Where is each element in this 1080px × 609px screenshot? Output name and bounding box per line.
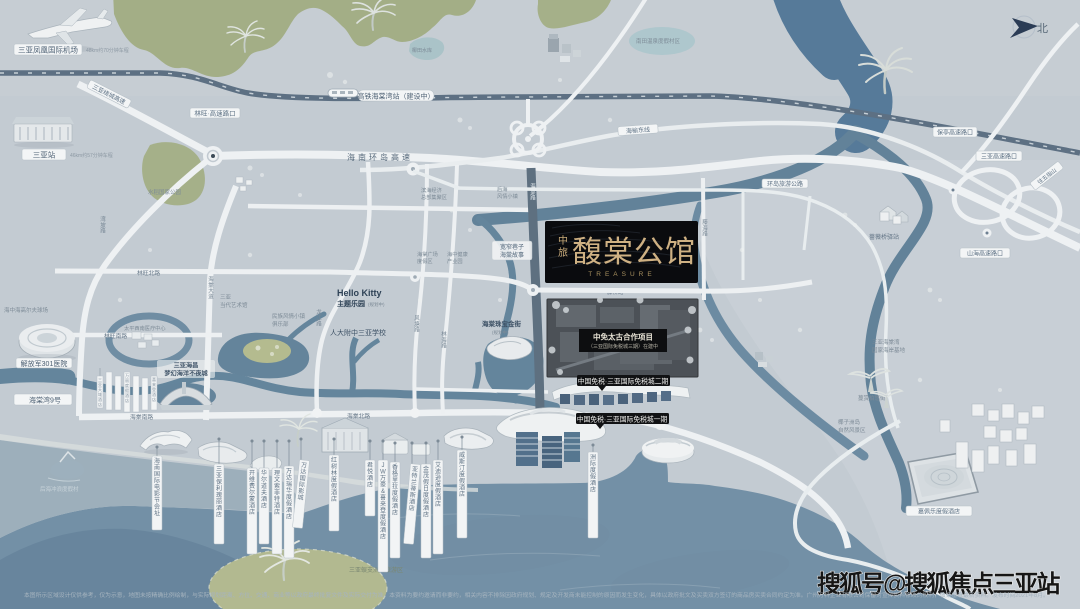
svg-text:(规划中): (规划中) [368, 301, 385, 308]
svg-text:三亚高速路口: 三亚高速路口 [981, 153, 1017, 161]
svg-text:太平西南医疗中心: 太平西南医疗中心 [124, 324, 166, 332]
svg-text:人大附中三亚学校: 人大附中三亚学校 [330, 328, 386, 337]
svg-text:椰田水库: 椰田水库 [412, 47, 432, 54]
svg-text:中: 中 [558, 234, 568, 247]
svg-text:当代艺术馆: 当代艺术馆 [220, 301, 248, 309]
svg-text:威斯汀度假酒店: 威斯汀度假酒店 [459, 451, 465, 498]
svg-text:环岛旅游公路: 环岛旅游公路 [767, 180, 803, 188]
svg-text:风塘路: 风塘路 [414, 315, 420, 334]
svg-text:本图所示区域设计仅供参考，仅为示意，地图未按精确比例绘制，与: 本图所示区域设计仅供参考，仅为示意，地图未按精确比例绘制，与实际规划距离、方位、… [24, 591, 1049, 599]
svg-text:海中海高尔夫球场: 海中海高尔夫球场 [4, 306, 49, 314]
svg-text:南田温泉度假村区: 南田温泉度假村区 [636, 37, 681, 45]
svg-text:滨海经济: 滨海经济 [421, 186, 443, 194]
svg-text:红树林度假酒店: 红树林度假酒店 [331, 456, 337, 503]
svg-text:Hello Kitty: Hello Kitty [337, 288, 382, 298]
svg-text:海南环岛高速: 海南环岛高速 [347, 152, 413, 162]
svg-text:TREASURE: TREASURE [588, 271, 655, 278]
svg-text:喜来登酒店: 喜来登酒店 [152, 376, 156, 402]
svg-text:水稻国家公园: 水稻国家公园 [148, 188, 182, 196]
svg-text:中国免税·三亚国际免税城二期: 中国免税·三亚国际免税城二期 [578, 377, 669, 386]
svg-text:万达瑞华度假酒店: 万达瑞华度假酒店 [286, 468, 292, 521]
svg-text:（三亚国际免税城三期）在建中: （三亚国际免税城三期）在建中 [588, 343, 658, 350]
svg-text:解放军301医院: 解放军301医院 [21, 359, 68, 368]
svg-text:海棠大道: 海棠大道 [208, 275, 214, 300]
svg-text:梦幻海洋不夜城: 梦幻海洋不夜城 [164, 370, 208, 378]
svg-text:林海路: 林海路 [441, 330, 447, 350]
svg-text:海棠北路: 海棠北路 [347, 412, 370, 420]
svg-text:(规划中): (规划中) [492, 329, 509, 336]
svg-text:湾坡路: 湾坡路 [100, 215, 106, 235]
svg-text:三亚站: 三亚站 [33, 150, 56, 160]
svg-text:俱乐部: 俱乐部 [272, 320, 289, 328]
svg-text:后海: 后海 [497, 185, 507, 193]
svg-text:三亚: 三亚 [220, 294, 232, 301]
svg-text:海南国际电影节会址: 海南国际电影节会址 [154, 457, 160, 517]
svg-text:风情小镇: 风情小镇 [497, 192, 518, 200]
svg-text:产业园: 产业园 [447, 257, 463, 265]
svg-text:三亚海棠湾: 三亚海棠湾 [872, 338, 900, 346]
svg-text:三亚海昌: 三亚海昌 [174, 362, 199, 370]
svg-text:华尔道夫酒店: 华尔道夫酒店 [261, 469, 267, 510]
svg-text:海棠南路: 海棠南路 [130, 413, 153, 421]
svg-text:理文索菲特酒店: 理文索菲特酒店 [274, 470, 280, 516]
svg-text:海棠故事: 海棠故事 [500, 251, 524, 259]
svg-text:海中健康: 海中健康 [447, 250, 468, 258]
svg-text:海棠湾9号: 海棠湾9号 [29, 396, 61, 405]
svg-text:总部集聚区: 总部集聚区 [421, 193, 447, 201]
svg-text:民族风情小镇: 民族风情小镇 [272, 312, 306, 320]
svg-text:46km约57分钟车程: 46km约57分钟车程 [70, 152, 113, 159]
svg-text:旅: 旅 [558, 246, 568, 259]
svg-text:三亚天域酒店: 三亚天域酒店 [98, 377, 102, 407]
svg-text:三亚凤凰国际机场: 三亚凤凰国际机场 [18, 45, 78, 55]
svg-text:三亚蜈支洲岛旅游区: 三亚蜈支洲岛旅游区 [349, 566, 403, 574]
svg-text:中国免税·三亚国际免税城一期: 中国免税·三亚国际免税城一期 [577, 415, 668, 424]
svg-text:北: 北 [1037, 22, 1048, 35]
svg-text:JW万豪&喜来登度假酒店: JW万豪&喜来登度假酒店 [380, 463, 386, 541]
svg-text:蔷薇桥驿站: 蔷薇桥驿站 [869, 233, 899, 241]
svg-text:海棠珠宝金街: 海棠珠宝金街 [482, 319, 522, 328]
svg-text:龙江路: 龙江路 [316, 308, 322, 328]
svg-text:馥棠公馆: 馥棠公馆 [572, 236, 696, 269]
svg-text:中免太古合作项目: 中免太古合作项目 [593, 332, 653, 342]
svg-text:山海高速路口: 山海高速路口 [967, 250, 1003, 258]
svg-text:后海冲浪度假村: 后海冲浪度假村 [40, 485, 79, 493]
svg-text:海棠路: 海棠路 [530, 182, 536, 202]
svg-text:度假区: 度假区 [417, 257, 433, 265]
svg-text:洲际度假酒店: 洲际度假酒店 [590, 454, 596, 494]
svg-text:艾迪逊度假酒店: 艾迪逊度假酒店 [435, 461, 441, 508]
svg-text:三亚保利瑰丽酒店: 三亚保利瑰丽酒店 [216, 466, 222, 519]
svg-text:开维费尔蒙酒店: 开维费尔蒙酒店 [249, 470, 255, 516]
svg-text:国家海岸基地: 国家海岸基地 [872, 346, 906, 354]
svg-text:金茂假日度假酒店: 金茂假日度假酒店 [423, 465, 429, 519]
svg-text:万丽度假酒店: 万丽度假酒店 [125, 373, 129, 403]
svg-text:嘉佩乐度假酒店: 嘉佩乐度假酒店 [918, 508, 960, 516]
svg-text:自然风景区: 自然风景区 [838, 426, 866, 434]
svg-text:林旺北路: 林旺北路 [137, 269, 160, 277]
svg-text:君悦酒店: 君悦酒店 [367, 462, 373, 489]
svg-text:香格里拉度假酒店: 香格里拉度假酒店 [392, 463, 398, 517]
svg-text:宽窄巷子: 宽窄巷子 [500, 243, 524, 251]
svg-text:保亭高速路口: 保亭高速路口 [937, 129, 973, 137]
svg-text:藤海路: 藤海路 [702, 218, 708, 238]
svg-text:48km约70分钟车程: 48km约70分钟车程 [86, 47, 129, 54]
svg-text:林旺·高速路口: 林旺·高速路口 [194, 109, 235, 118]
svg-text:高铁海棠湾站（建设中）: 高铁海棠湾站（建设中） [358, 92, 435, 101]
svg-text:海棠广场: 海棠广场 [417, 250, 438, 258]
svg-text:椰子洲岛: 椰子洲岛 [838, 418, 861, 426]
svg-text:主题乐园: 主题乐园 [337, 299, 365, 308]
svg-text:林旺南路: 林旺南路 [104, 332, 127, 340]
